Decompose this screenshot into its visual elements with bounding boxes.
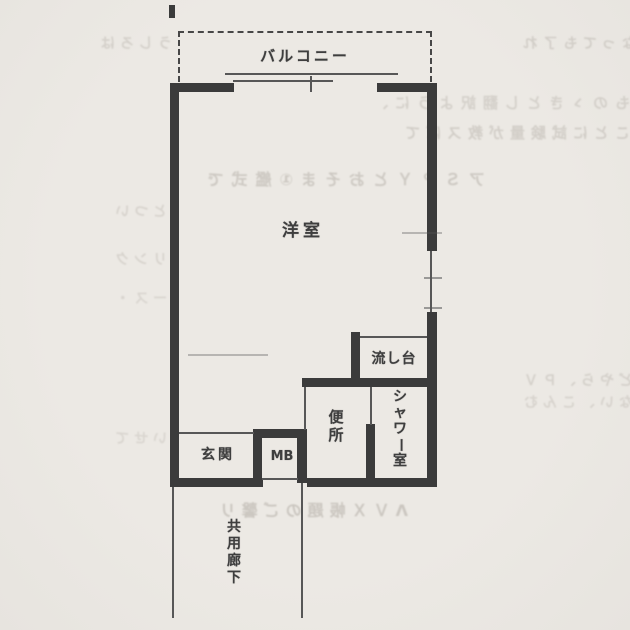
balcony-window-tick	[310, 76, 312, 92]
entrance-label: 玄関	[201, 444, 235, 464]
toilet-left-line	[304, 387, 306, 430]
balcony-label: バルコニー	[260, 45, 350, 66]
toilet-shower-divider	[370, 387, 372, 425]
bleed-through-text: うしろは	[2, 33, 172, 53]
wall-left	[170, 83, 179, 487]
toilet-label: 便所	[328, 408, 343, 444]
right-window-tick	[424, 307, 442, 309]
balcony-window-line	[225, 73, 398, 75]
corridor-right-line	[301, 483, 303, 618]
bleed-through-text: ものゝきとし翻訳ように、	[150, 92, 630, 113]
sink-label: 流し台	[372, 348, 417, 368]
sink-top-line	[360, 336, 427, 338]
right-window-tick	[424, 277, 442, 279]
wall-toilet-shower-post	[366, 424, 375, 478]
corridor-left-line	[172, 487, 174, 618]
meter-box-label: MB	[271, 449, 294, 464]
wall-sink-left	[351, 332, 360, 382]
bleed-through-text: ΛＶＸ帳題のご馨リ	[178, 497, 408, 521]
dimension-tick	[402, 232, 442, 234]
wall-top-left	[170, 83, 234, 92]
wall-mb-right	[297, 429, 307, 483]
bleed-through-text: とつい	[2, 201, 167, 221]
bleed-through-text: どやら、ＰＶ	[438, 370, 630, 390]
shower-room-label: シャワー室	[393, 389, 407, 469]
main-room-label: 洋室	[282, 216, 324, 241]
right-window-line	[430, 251, 432, 312]
bleed-through-text: リンク	[2, 249, 167, 269]
mb-door-line	[262, 478, 298, 480]
bleed-through-text: ことに試験量が教スぼて	[190, 122, 630, 143]
entrance-step-line	[179, 432, 254, 434]
wall-right-upper	[427, 83, 437, 251]
wall-bottom-left	[170, 478, 263, 487]
bleed-through-text: いせて	[2, 428, 167, 448]
bleed-through-text: なっても了れ	[436, 33, 630, 53]
scan-mark-top	[169, 5, 175, 18]
bleed-through-text: ース・	[2, 288, 167, 308]
wall-right-lower	[427, 312, 437, 487]
corridor-label: 共用廊下	[227, 519, 241, 587]
wall-mid-horizontal	[302, 378, 437, 387]
room-faint-line	[188, 354, 268, 356]
bleed-through-text: ない、こんむ	[438, 392, 630, 412]
wall-bottom-right	[307, 478, 437, 487]
floor-plan-canvas: なっても了れ うしろは ものゝきとし翻訳ように、 ことに試験量が教スぼて アＳＰ…	[0, 0, 630, 630]
balcony-window-line	[233, 80, 333, 82]
bleed-through-text: アＳＰＹとおそま①艦式で	[0, 166, 485, 190]
